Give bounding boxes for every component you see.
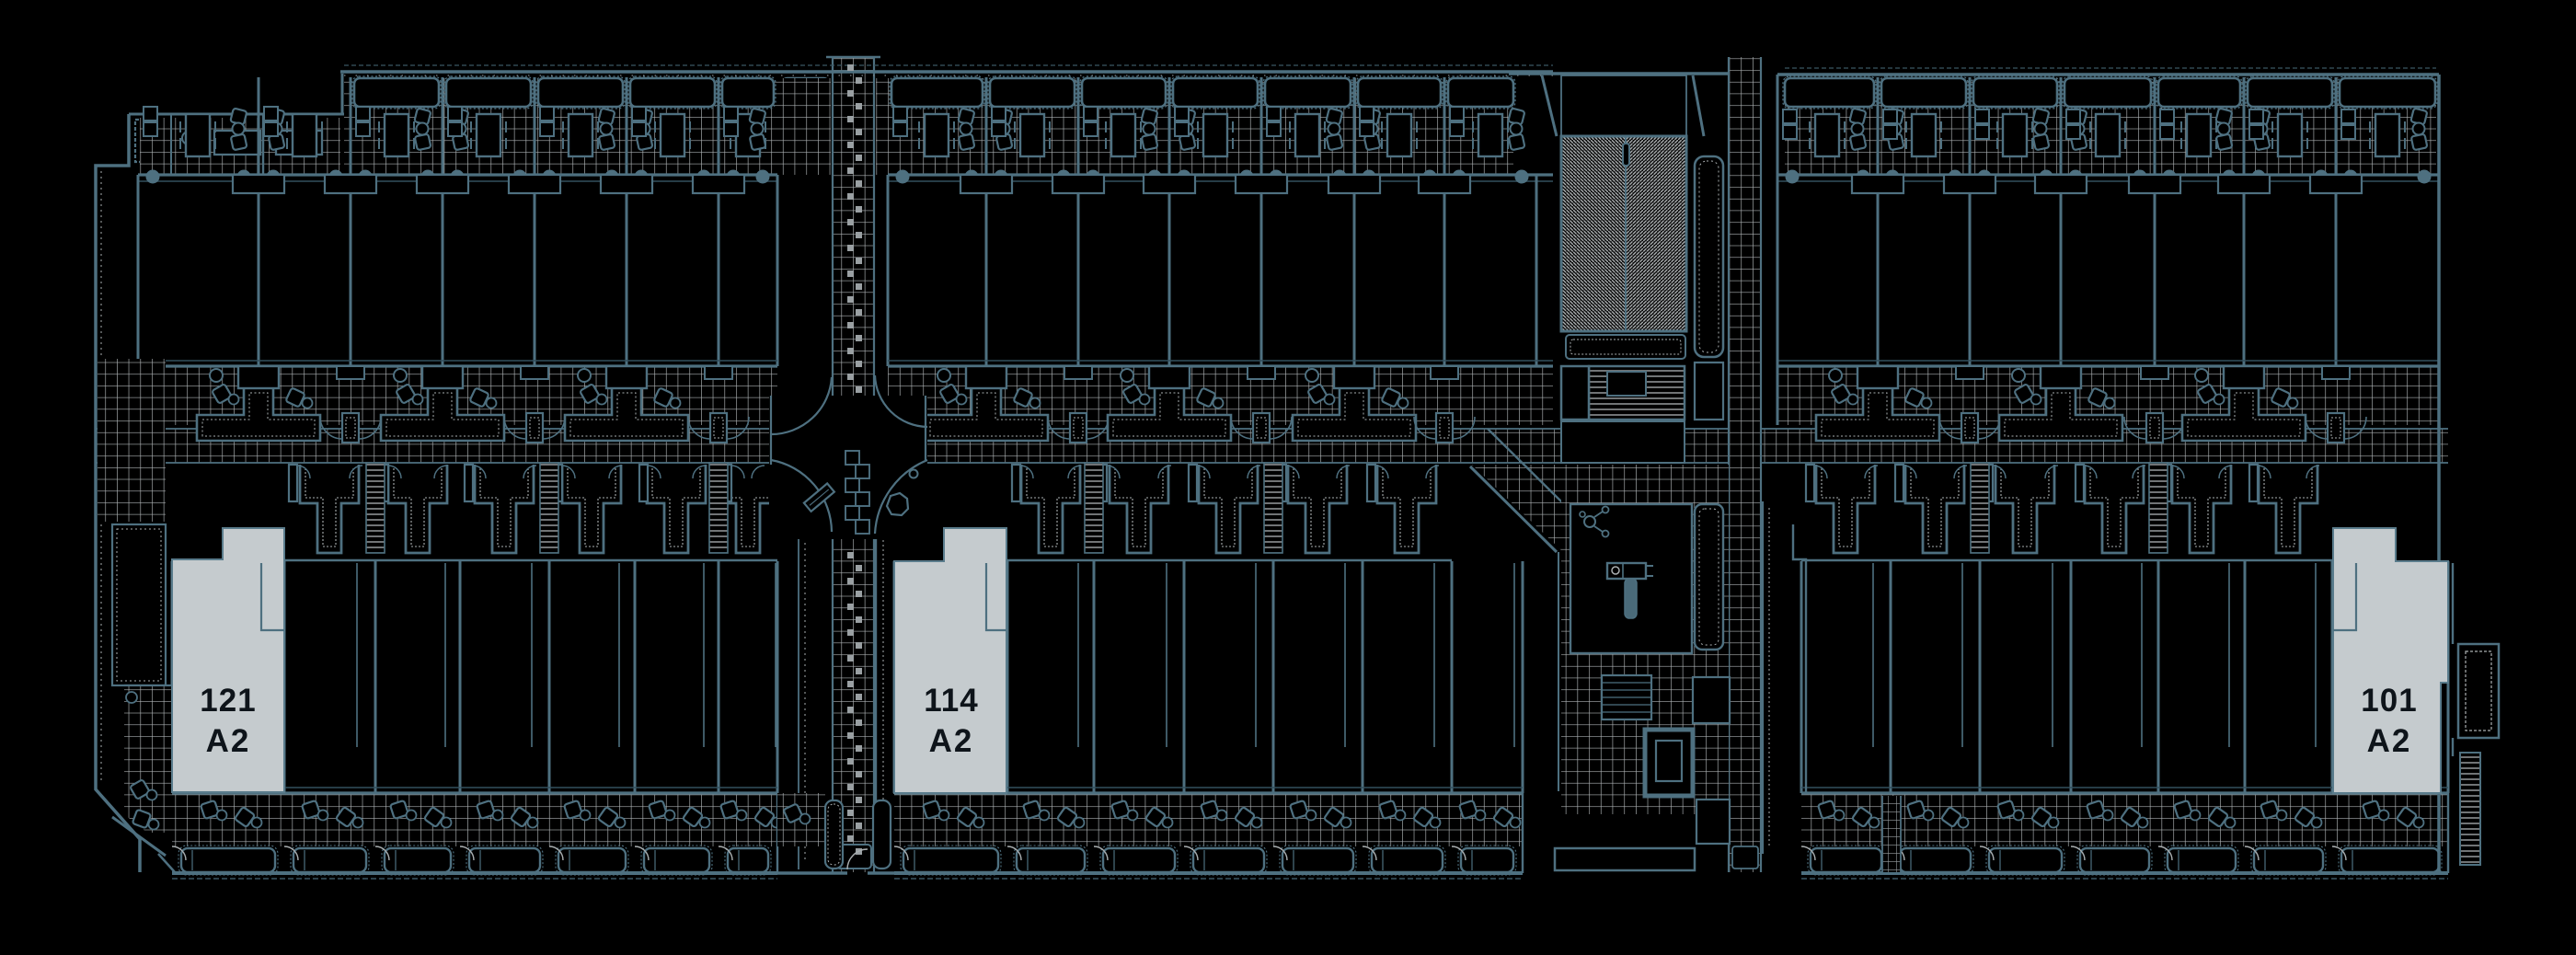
svg-text:121: 121 <box>200 683 256 719</box>
svg-text:A2: A2 <box>2367 723 2412 759</box>
svg-text:A2: A2 <box>929 723 974 759</box>
svg-text:114: 114 <box>924 683 978 719</box>
svg-text:A2: A2 <box>206 723 251 759</box>
svg-text:101: 101 <box>2361 683 2417 719</box>
